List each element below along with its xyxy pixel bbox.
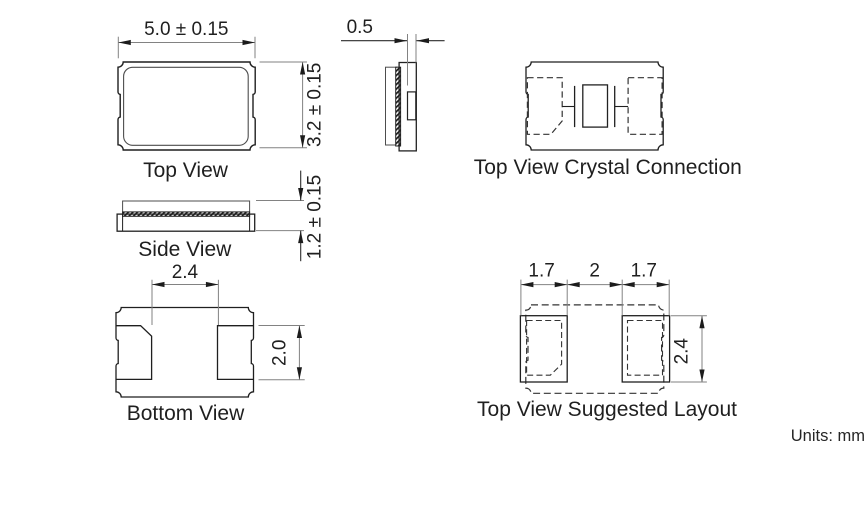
svg-text:3.2 ± 0.15: 3.2 ± 0.15 — [305, 63, 326, 147]
svg-text:2: 2 — [589, 261, 600, 282]
svg-text:Bottom View: Bottom View — [127, 402, 245, 425]
svg-text:Top View Crystal Connection: Top View Crystal Connection — [474, 156, 742, 179]
svg-text:5.0 ± 0.15: 5.0 ± 0.15 — [144, 19, 228, 40]
svg-text:Top View Suggested Layout: Top View Suggested Layout — [477, 398, 737, 421]
svg-text:1.7: 1.7 — [528, 261, 554, 282]
svg-text:1.7: 1.7 — [631, 261, 657, 282]
svg-text:Units: mm: Units: mm — [791, 427, 865, 445]
svg-text:2.4: 2.4 — [672, 338, 693, 365]
svg-text:Side View: Side View — [138, 238, 232, 261]
svg-text:2.4: 2.4 — [172, 262, 199, 283]
svg-text:1.2 ± 0.15: 1.2 ± 0.15 — [305, 175, 326, 259]
svg-text:2.0: 2.0 — [270, 340, 291, 366]
svg-text:Top View: Top View — [143, 159, 229, 182]
svg-text:0.5: 0.5 — [347, 17, 373, 38]
